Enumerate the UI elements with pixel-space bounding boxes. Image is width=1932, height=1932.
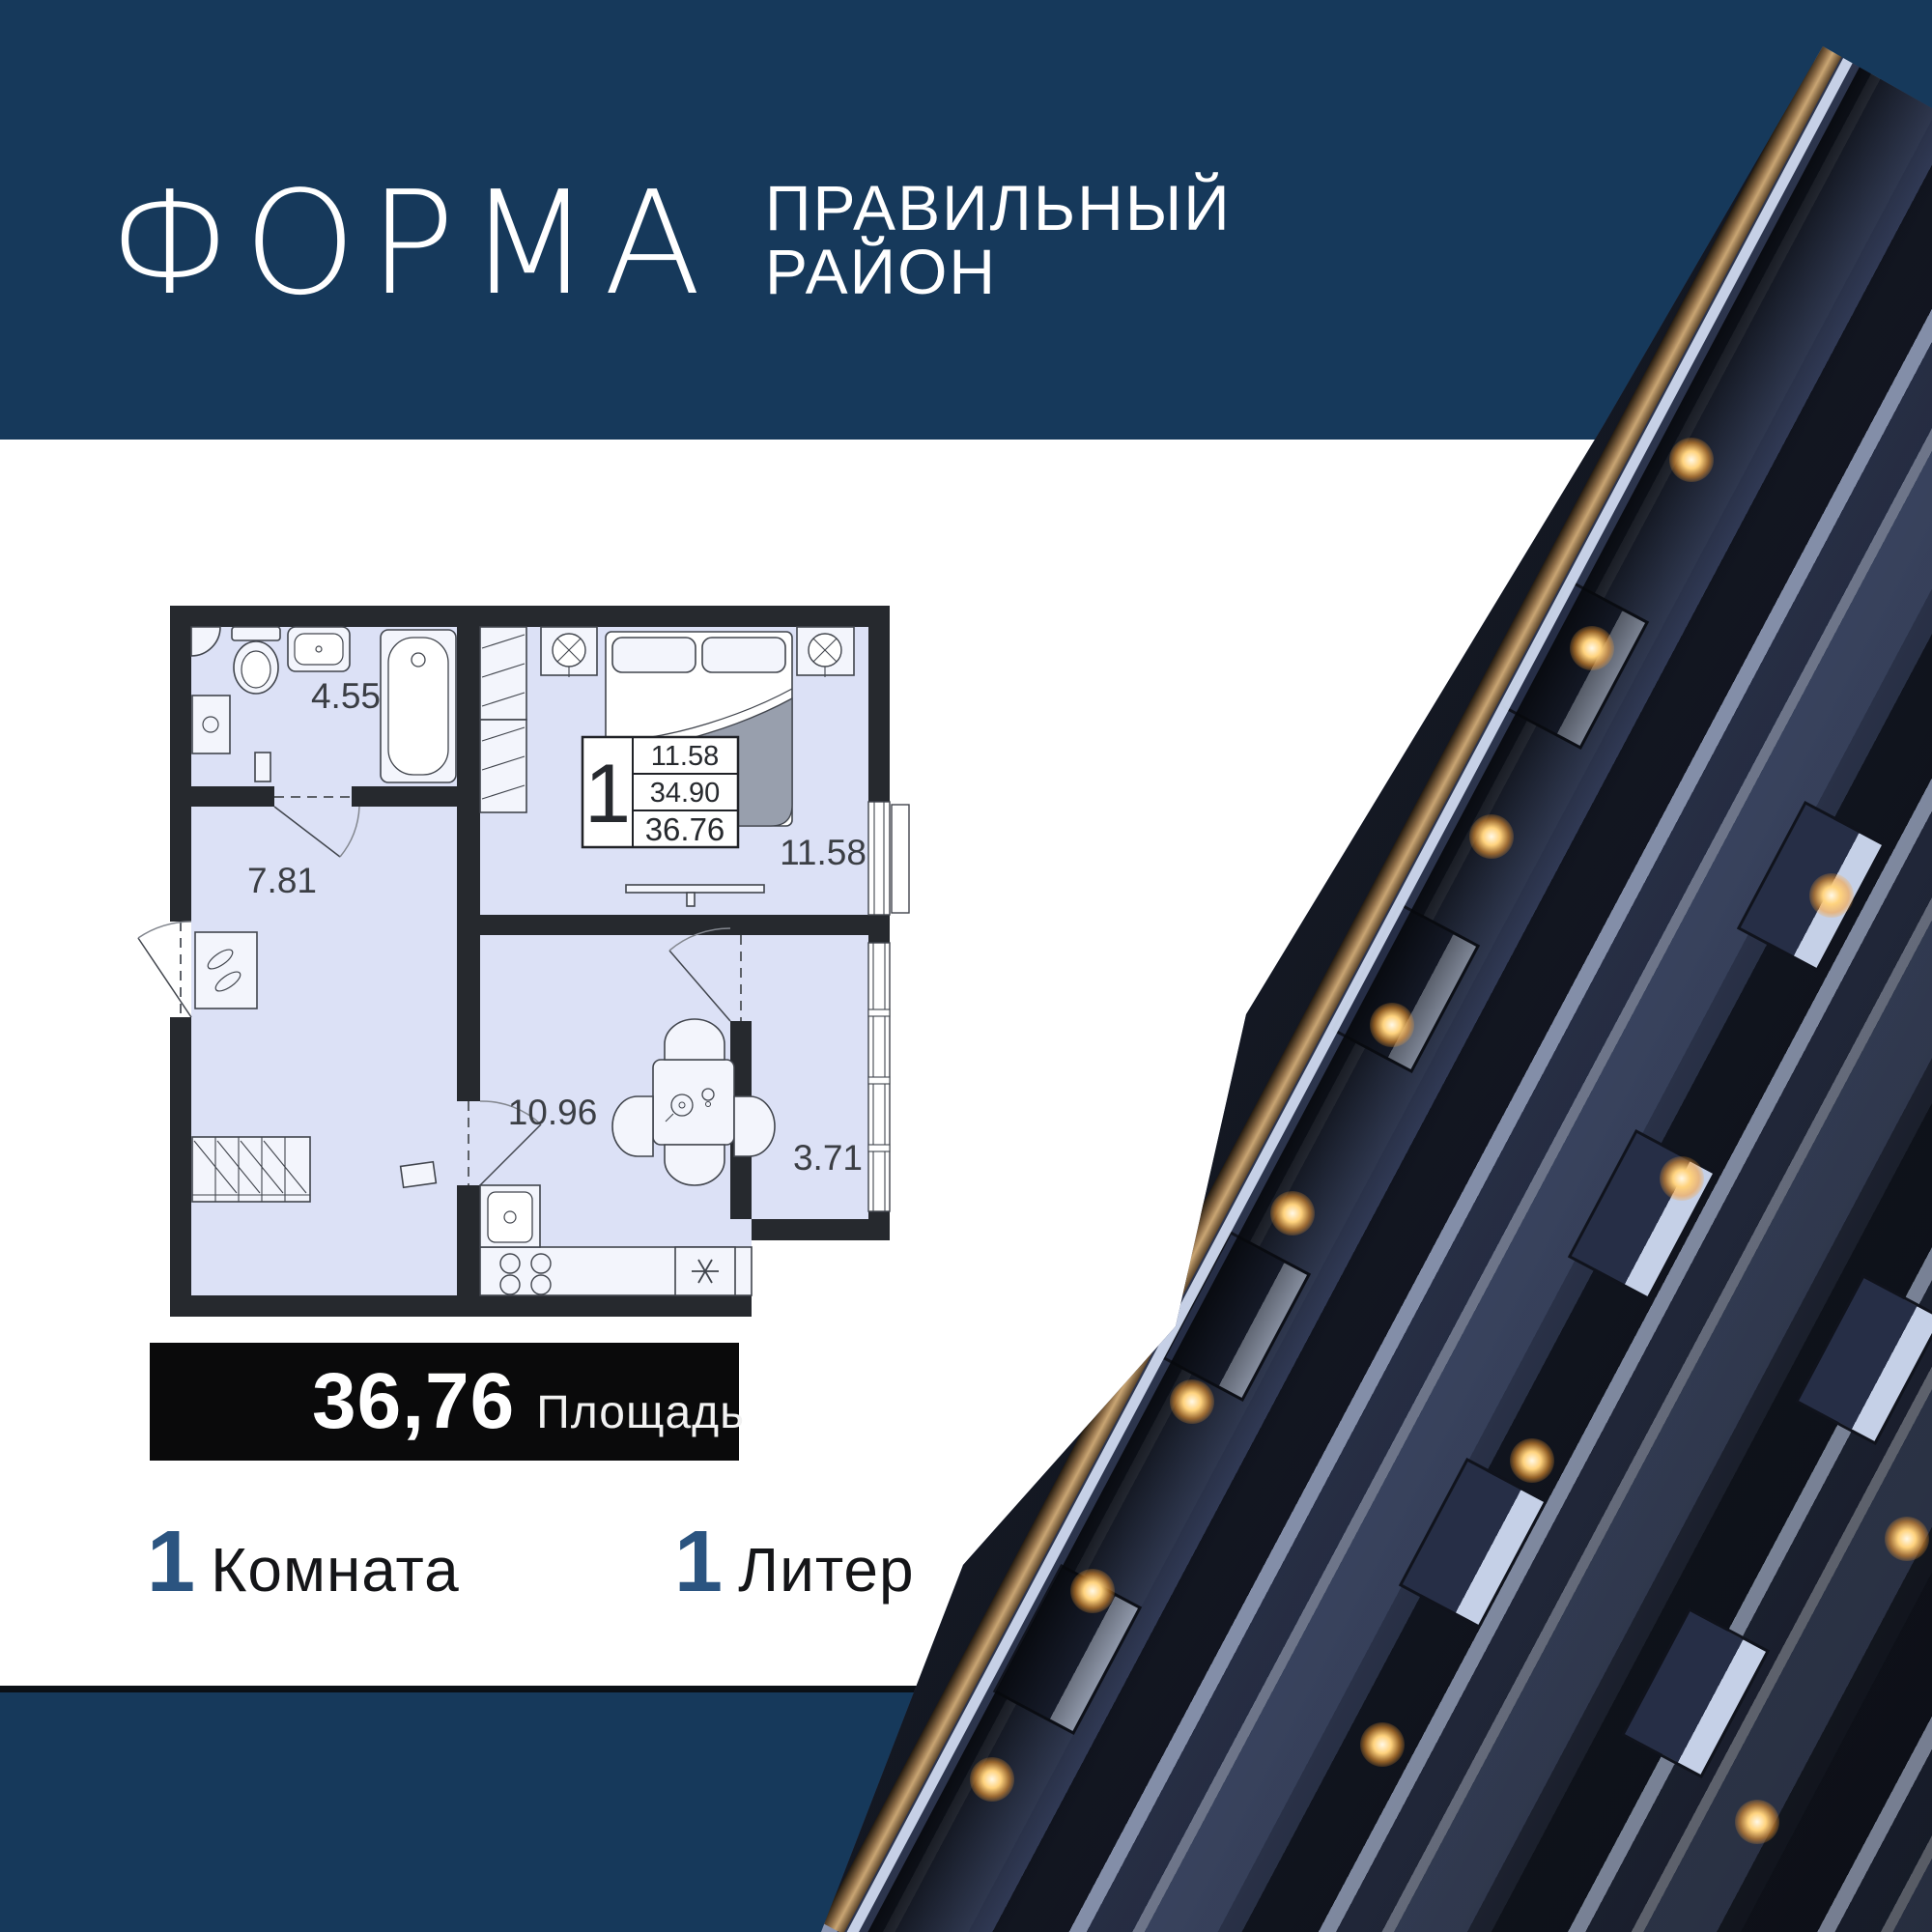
stat-liter: 1 Литер [674, 1513, 915, 1612]
flyer-canvas: ФОРМА ПРАВИЛЬНЫЙ РАЙОН [0, 0, 1932, 1932]
legend-rooms-count: 1 [584, 748, 631, 840]
room-label-hallway: 7.81 [247, 861, 317, 900]
facade-light [1809, 873, 1854, 918]
room-label-balcony: 3.71 [793, 1138, 863, 1178]
legend-total-area: 36.76 [645, 811, 725, 847]
facade-light [1270, 1191, 1315, 1236]
plan-legend: 1 11.58 34.90 36.76 [582, 737, 738, 847]
room-label-bedroom: 11.58 [780, 833, 867, 872]
area-label: Площадь [536, 1386, 745, 1439]
stat-liter-value: 1 [674, 1513, 723, 1612]
brand-logo: ФОРМА [108, 189, 714, 298]
area-value: 36,76 [312, 1343, 515, 1461]
closet [480, 627, 526, 720]
washing-machine [192, 696, 230, 753]
pillow [612, 638, 696, 672]
tagline-line1: ПРАВИЛЬНЫЙ [765, 176, 1232, 240]
facade-light [1885, 1517, 1929, 1561]
facade-light [1570, 626, 1614, 670]
kitchen-sink [488, 1192, 532, 1242]
pillow [702, 638, 785, 672]
toilet-tank [232, 627, 280, 640]
facade-light [1669, 438, 1714, 482]
facade-light [1360, 1722, 1405, 1767]
shelf [401, 1162, 437, 1188]
console-table [195, 932, 257, 1009]
room-label-bathroom: 4.55 [311, 676, 381, 716]
facade-light [1170, 1379, 1214, 1424]
legend-area-no-balcony: 34.90 [650, 778, 721, 809]
tv-console [626, 885, 764, 893]
stat-rooms-value: 1 [147, 1513, 195, 1612]
stat-rooms-label: Комната [211, 1534, 460, 1605]
facade-light [1735, 1800, 1779, 1844]
facade-light [970, 1757, 1014, 1802]
facade-light [1660, 1156, 1704, 1201]
tagline-line2: РАЙОН [765, 240, 1232, 303]
area-summary-box: 36,76 Площадь [150, 1343, 739, 1461]
facade-light [1469, 814, 1514, 859]
towel-rack [255, 753, 270, 781]
facade-light [1510, 1438, 1554, 1483]
facade-light [1370, 1003, 1414, 1047]
brand-tagline: ПРАВИЛЬНЫЙ РАЙОН [765, 176, 1232, 303]
room-label-kitchen: 10.96 [508, 1093, 598, 1132]
facade-light [1070, 1569, 1115, 1613]
wardrobe [192, 1137, 310, 1202]
stat-liter-label: Литер [738, 1534, 915, 1605]
floor-plan: 1 11.58 34.90 36.76 4.55 7.81 10.96 11.5… [112, 596, 948, 1336]
dining-table [653, 1060, 734, 1145]
legend-living-area: 11.58 [651, 741, 719, 772]
stat-rooms: 1 Комната [147, 1513, 460, 1612]
closet [480, 720, 526, 812]
window-sill [892, 805, 909, 913]
